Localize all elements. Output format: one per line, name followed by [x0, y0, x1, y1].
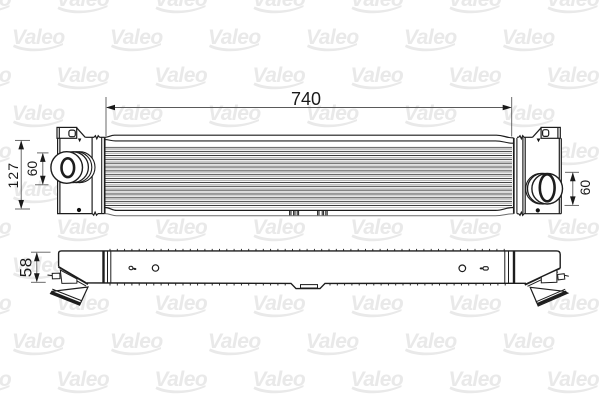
svg-text:58: 58	[17, 257, 36, 277]
svg-text:60: 60	[24, 161, 40, 177]
svg-text:127: 127	[5, 162, 21, 189]
svg-text:60: 60	[577, 180, 593, 196]
svg-text:740: 740	[291, 89, 321, 109]
